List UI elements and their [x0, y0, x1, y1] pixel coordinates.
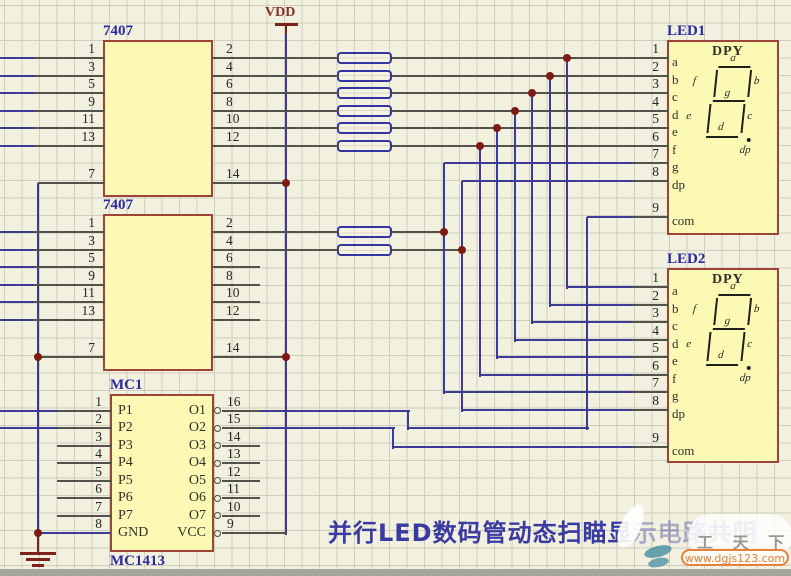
pin-number: 13 — [227, 446, 271, 461]
pin-number: 13 — [51, 303, 95, 318]
pin-wire — [0, 110, 36, 112]
pin-name: O3 — [168, 438, 206, 454]
wire-segment — [514, 111, 516, 342]
pin-name: O1 — [168, 403, 206, 419]
pin-number: 6 — [619, 129, 659, 145]
pin-name: c — [672, 318, 678, 334]
pin-number: 12 — [227, 464, 271, 479]
pin-number: 7 — [58, 499, 102, 514]
pin-number: 11 — [51, 111, 95, 126]
pin-number: 1 — [619, 41, 659, 57]
inverter-bubble-icon — [214, 460, 221, 467]
display-type-label: DPY — [712, 272, 744, 288]
pin-name: a — [672, 54, 678, 70]
segment-f — [713, 70, 718, 97]
segment-c — [740, 104, 745, 133]
pin-number: 9 — [51, 94, 95, 109]
pin-stub — [213, 145, 339, 147]
junction-dot — [563, 54, 571, 62]
pin-wire — [0, 319, 36, 321]
inverter-bubble-icon — [214, 477, 221, 484]
pin-name: VCC — [168, 525, 206, 541]
pin-number: 1 — [619, 270, 659, 286]
seven-segment-icon: abcdefgdp — [695, 288, 763, 386]
segment-label-c: c — [747, 338, 753, 350]
pin-wire — [0, 249, 36, 251]
segment-label-c: c — [747, 110, 753, 122]
pin-number: 9 — [619, 430, 659, 446]
pin-name: f — [672, 142, 676, 158]
pin-name: d — [672, 107, 679, 123]
pin-name: e — [672, 124, 678, 140]
resistor — [337, 52, 392, 64]
pin-name: c — [672, 89, 678, 105]
segment-label-dp: dp — [739, 144, 751, 156]
pin-number: 8 — [619, 164, 659, 180]
pin-number: 7 — [51, 340, 95, 355]
pin-stub — [632, 180, 669, 182]
pin-stub — [213, 319, 260, 321]
segment-label-a: a — [730, 52, 737, 64]
pin-number: 9 — [619, 200, 659, 216]
image-bottom-strip — [0, 569, 791, 576]
pin-stub — [632, 216, 669, 218]
segment-g — [713, 100, 745, 102]
pin-stub — [222, 532, 287, 534]
segment-c — [740, 332, 745, 361]
pin-name: P5 — [118, 473, 133, 489]
pin-name: b — [672, 72, 679, 88]
pin-number: 8 — [226, 94, 270, 109]
pin-number: 12 — [226, 129, 270, 144]
resistor — [337, 244, 392, 256]
ground-symbol-bar — [32, 564, 44, 567]
title-main: 并行LED数码管动态扫瞄显 — [328, 519, 633, 547]
pin-number: 4 — [58, 446, 102, 461]
junction-dot — [282, 353, 290, 361]
pin-name: e — [672, 353, 678, 369]
resistor — [337, 87, 392, 99]
schematic-canvas: VDD 并行LED数码管动态扫瞄显示电路共阴 工 天 下 www.dgjs123… — [0, 0, 791, 576]
pin-wire — [0, 410, 60, 412]
pin-number: 8 — [226, 268, 270, 283]
pin-name: O7 — [168, 508, 206, 524]
pin-name: f — [672, 371, 676, 387]
pin-number: 1 — [51, 215, 95, 230]
wire-segment — [392, 249, 464, 251]
inverter-bubble-icon — [214, 495, 221, 502]
display-reference: LED2 — [667, 251, 705, 268]
pin-number: 1 — [51, 41, 95, 56]
wire-segment — [566, 58, 568, 289]
pin-number: 10 — [227, 499, 271, 514]
pin-stub — [632, 446, 669, 448]
junction-dot — [282, 179, 290, 187]
resistor — [337, 122, 392, 134]
ic-part-number: MC1413 — [110, 553, 165, 570]
resistor — [337, 140, 392, 152]
wire-segment — [408, 427, 589, 429]
pin-number: 6 — [226, 250, 270, 265]
segment-a — [718, 66, 750, 68]
junction-dot — [493, 124, 501, 132]
inverter-bubble-icon — [214, 425, 221, 432]
pin-wire — [0, 231, 36, 233]
ground-symbol-bar — [26, 558, 50, 561]
pin-number: 11 — [51, 285, 95, 300]
pin-name: P6 — [118, 490, 133, 506]
pin-number: 14 — [226, 166, 270, 181]
segment-label-g: g — [724, 87, 731, 99]
pin-number: 9 — [51, 268, 95, 283]
segment-b — [747, 70, 752, 97]
wire-segment — [443, 163, 445, 394]
inverter-bubble-icon — [214, 407, 221, 414]
pin-name: O6 — [168, 490, 206, 506]
resistor — [337, 226, 392, 238]
pin-wire — [0, 427, 60, 429]
pin-number: 4 — [619, 323, 659, 339]
pin-name: a — [672, 283, 678, 299]
segment-e — [706, 332, 711, 361]
pin-name: O2 — [168, 420, 206, 436]
pin-number: 6 — [58, 481, 102, 496]
inverter-bubble-icon — [214, 512, 221, 519]
junction-dot — [546, 72, 554, 80]
pin-number: 3 — [51, 233, 95, 248]
resistor — [337, 105, 392, 117]
pin-name: P2 — [118, 420, 133, 436]
pin-number: 5 — [619, 111, 659, 127]
segment-label-d: d — [717, 349, 724, 361]
segment-g — [713, 328, 745, 330]
pin-number: 4 — [619, 94, 659, 110]
vdd-power-label: VDD — [265, 5, 295, 21]
junction-dot — [440, 228, 448, 236]
pin-wire — [0, 92, 36, 94]
wire-segment — [38, 532, 112, 534]
pin-name: dp — [672, 406, 685, 422]
wire-segment — [392, 231, 446, 233]
junction-dot — [34, 353, 42, 361]
pin-stub — [38, 182, 105, 184]
pin-number: 7 — [619, 375, 659, 391]
pin-number: 10 — [226, 285, 270, 300]
display-type-label: DPY — [712, 44, 744, 60]
pin-number: 11 — [227, 481, 271, 496]
segment-a — [718, 294, 750, 296]
wire-segment — [586, 217, 588, 430]
pin-number: 3 — [51, 59, 95, 74]
pin-name: P3 — [118, 438, 133, 454]
pin-number: 8 — [58, 516, 102, 531]
segment-label-g: g — [724, 315, 731, 327]
pin-number: 2 — [226, 215, 270, 230]
pin-name: P4 — [118, 455, 133, 471]
ground-symbol-bar — [20, 552, 56, 555]
pin-number: 5 — [619, 340, 659, 356]
pin-number: 1 — [58, 394, 102, 409]
pin-wire — [0, 145, 36, 147]
pin-number: 9 — [227, 516, 271, 531]
segment-label-b: b — [753, 303, 760, 315]
pin-number: 2 — [226, 41, 270, 56]
wire-segment — [393, 446, 669, 448]
pin-wire — [0, 301, 36, 303]
pin-wire — [0, 75, 36, 77]
pin-name: d — [672, 336, 679, 352]
wire-segment — [531, 93, 533, 324]
pin-number: 4 — [226, 233, 270, 248]
pin-number: 3 — [619, 76, 659, 92]
pin-name: g — [672, 159, 679, 175]
segment-dp — [747, 138, 751, 142]
ic-body — [103, 40, 213, 197]
segment-e — [706, 104, 711, 133]
pin-name: com — [672, 213, 694, 229]
pin-wire — [0, 57, 36, 59]
segment-label-b: b — [753, 75, 760, 87]
pin-number: 5 — [51, 76, 95, 91]
pin-stub — [34, 319, 105, 321]
segment-b — [747, 298, 752, 325]
pin-wire — [0, 284, 36, 286]
ic-reference: 7407 — [103, 197, 133, 214]
pin-name: g — [672, 388, 679, 404]
pin-number: 3 — [619, 305, 659, 321]
pin-stub — [38, 356, 105, 358]
junction-dot — [458, 246, 466, 254]
segment-label-a: a — [730, 280, 737, 292]
wire-segment — [258, 427, 395, 429]
pin-number: 4 — [226, 59, 270, 74]
pin-number: 6 — [226, 76, 270, 91]
pin-number: 5 — [58, 464, 102, 479]
pin-number: 8 — [619, 393, 659, 409]
pin-name: dp — [672, 177, 685, 193]
junction-dot — [34, 529, 42, 537]
pin-number: 16 — [227, 394, 271, 409]
watermark-url-text: www.dgjs123.com — [685, 552, 785, 565]
segment-dp — [747, 366, 751, 370]
pin-stub — [632, 409, 669, 411]
segment-d — [706, 136, 738, 138]
pin-number: 6 — [619, 358, 659, 374]
segment-label-d: d — [717, 121, 724, 133]
segment-d — [706, 364, 738, 366]
pin-number: 14 — [227, 429, 271, 444]
junction-dot — [528, 89, 536, 97]
pin-number: 12 — [226, 303, 270, 318]
pin-number: 3 — [58, 429, 102, 444]
vdd-power-bar — [275, 23, 298, 26]
pin-number: 2 — [619, 59, 659, 75]
pin-number: 2 — [58, 411, 102, 426]
wire-segment — [258, 410, 410, 412]
junction-dot — [511, 107, 519, 115]
watermark-url-box: www.dgjs123.com — [681, 549, 789, 566]
pin-wire — [0, 127, 36, 129]
seven-segment-icon: abcdefgdp — [695, 60, 763, 158]
segment-f — [713, 298, 718, 325]
pin-number: 7 — [51, 166, 95, 181]
pin-number: 15 — [227, 411, 271, 426]
pin-wire — [0, 266, 36, 268]
segment-label-dp: dp — [739, 372, 751, 384]
pin-number: 10 — [226, 111, 270, 126]
inverter-bubble-icon — [214, 442, 221, 449]
pin-number: 7 — [619, 146, 659, 162]
resistor — [337, 70, 392, 82]
pin-name: com — [672, 443, 694, 459]
pin-name: O5 — [168, 473, 206, 489]
pin-name: b — [672, 301, 679, 317]
ic-reference: MC1 — [110, 377, 143, 394]
pin-stub — [213, 356, 287, 358]
pin-number: 13 — [51, 129, 95, 144]
pin-stub — [34, 145, 105, 147]
pin-name: P1 — [118, 403, 133, 419]
inverter-bubble-icon — [214, 530, 221, 537]
pin-name: O4 — [168, 455, 206, 471]
pin-number: 2 — [619, 288, 659, 304]
pin-number: 14 — [226, 340, 270, 355]
wire-segment — [549, 76, 551, 307]
ic-body — [103, 214, 213, 371]
display-reference: LED1 — [667, 23, 705, 40]
junction-dot — [476, 142, 484, 150]
pin-name: GND — [118, 525, 148, 541]
pin-name: P7 — [118, 508, 133, 524]
pin-stub — [213, 182, 287, 184]
pin-number: 5 — [51, 250, 95, 265]
wire-segment — [461, 181, 463, 412]
ic-reference: 7407 — [103, 23, 133, 40]
